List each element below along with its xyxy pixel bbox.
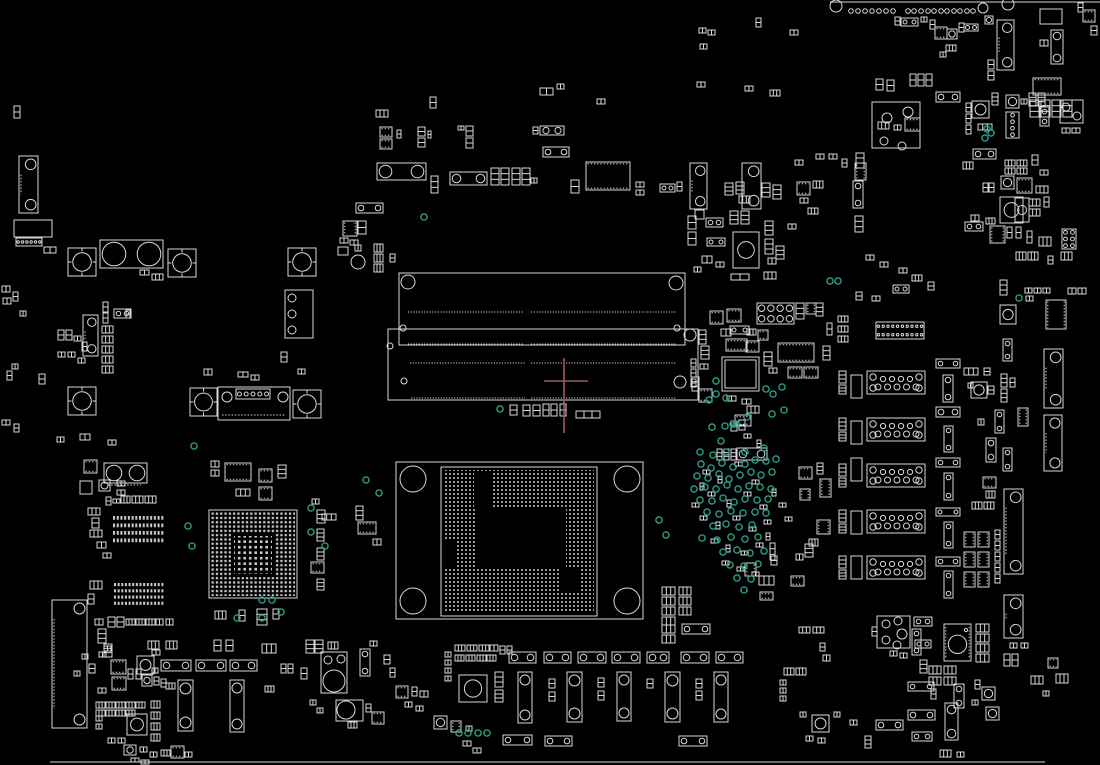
pcb-boardview-canvas[interactable] <box>0 0 1100 765</box>
bga-chip[interactable] <box>209 510 297 598</box>
